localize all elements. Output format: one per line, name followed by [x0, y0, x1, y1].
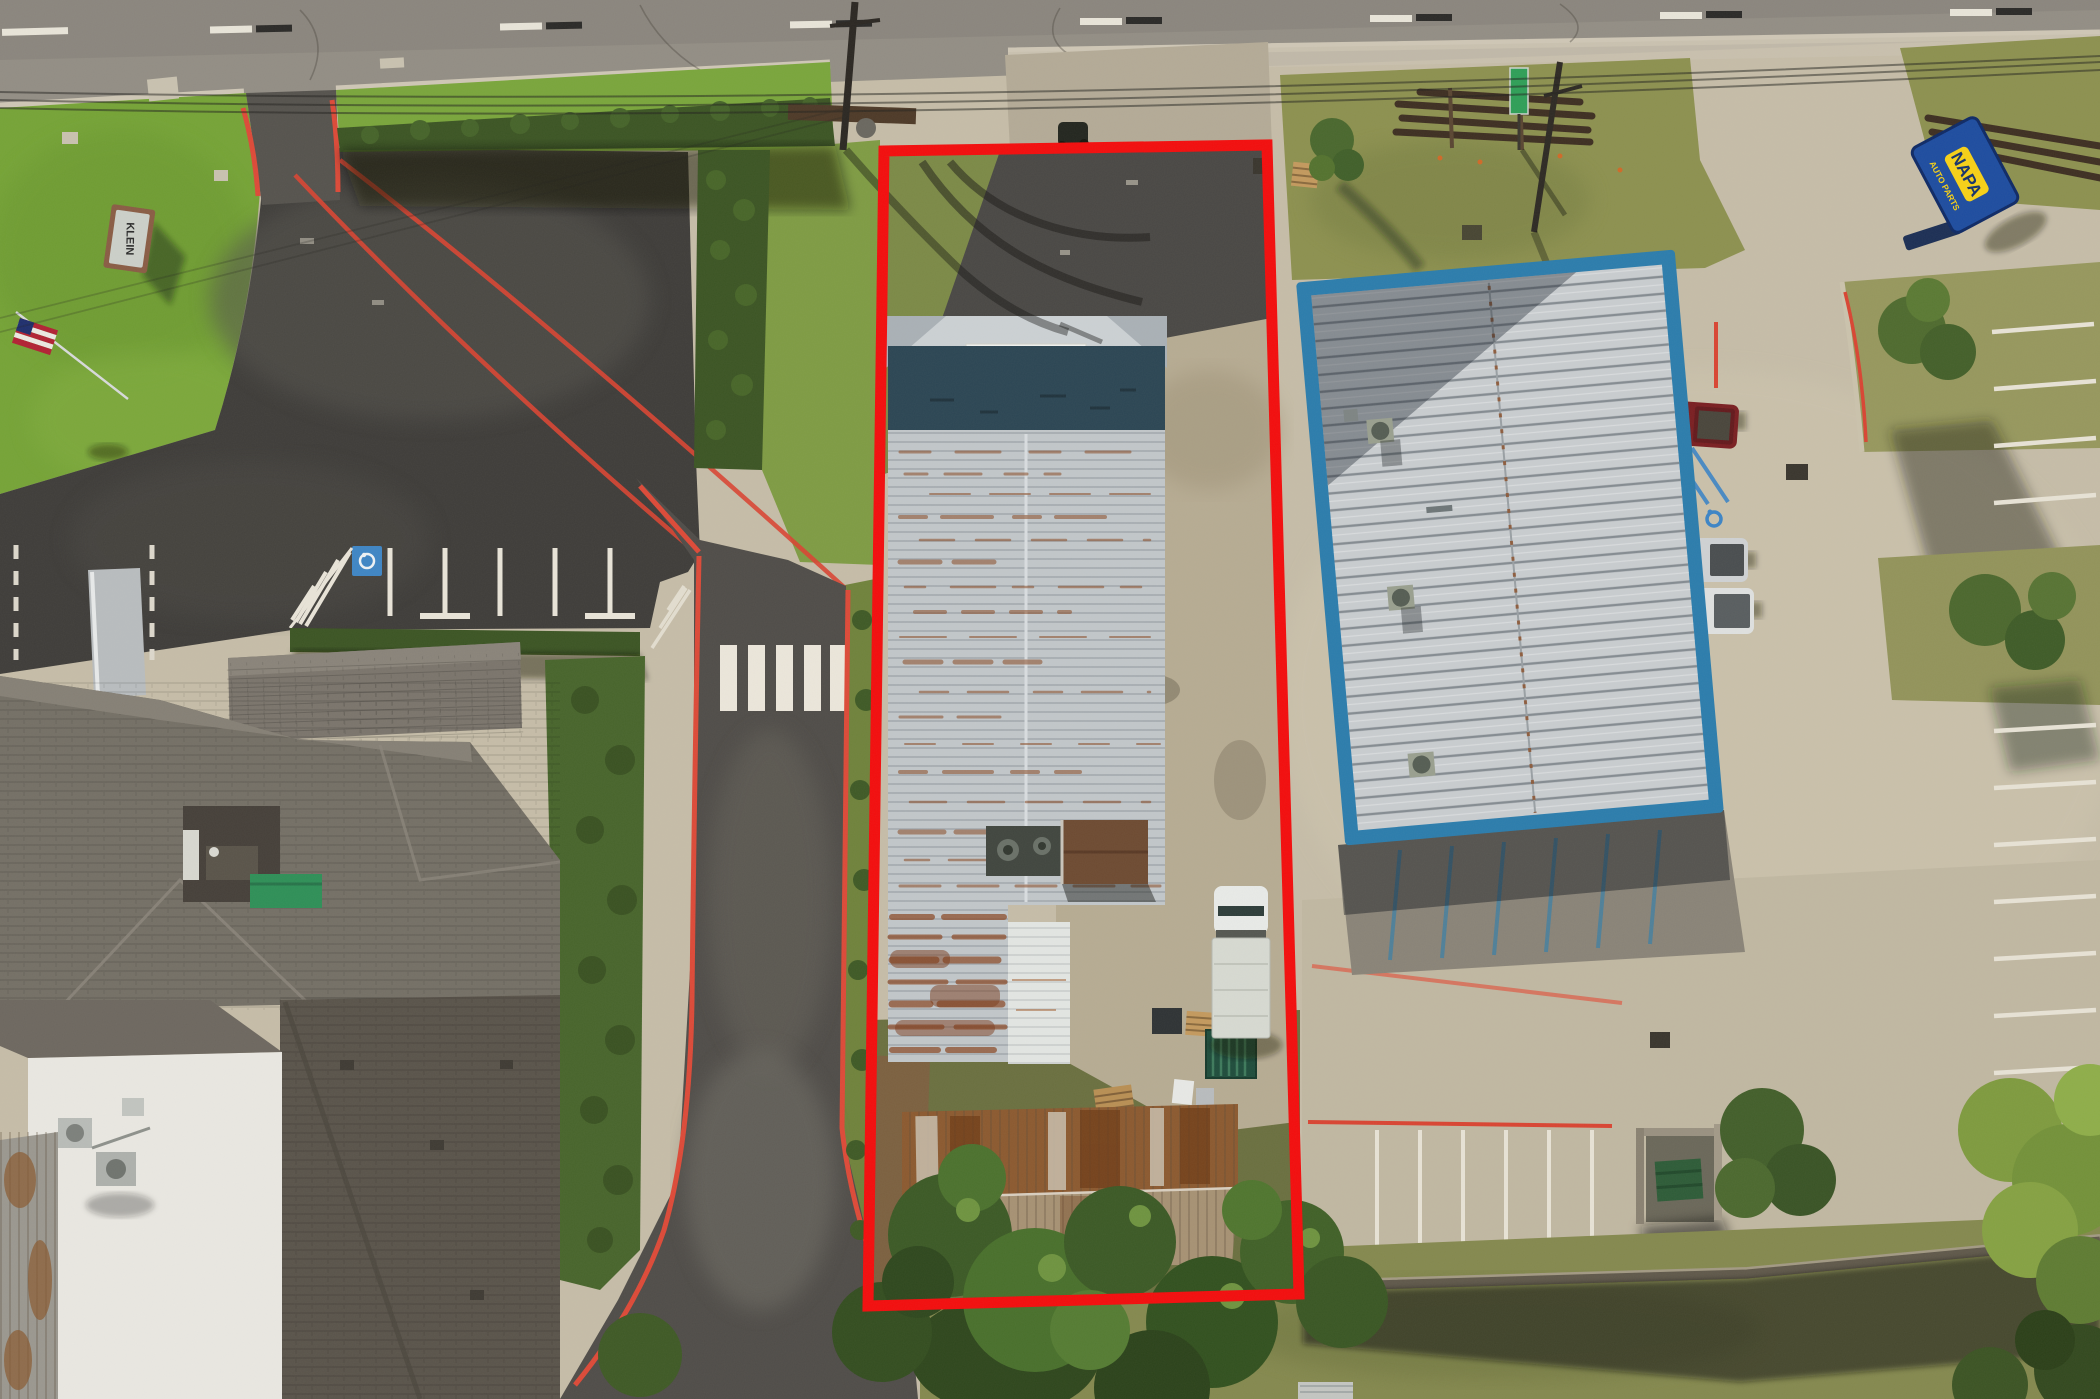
aerial-photo-stage: KLEIN: [0, 0, 2100, 1399]
photo-grain: [0, 0, 2100, 1399]
aerial-photo: KLEIN: [0, 0, 2100, 1399]
